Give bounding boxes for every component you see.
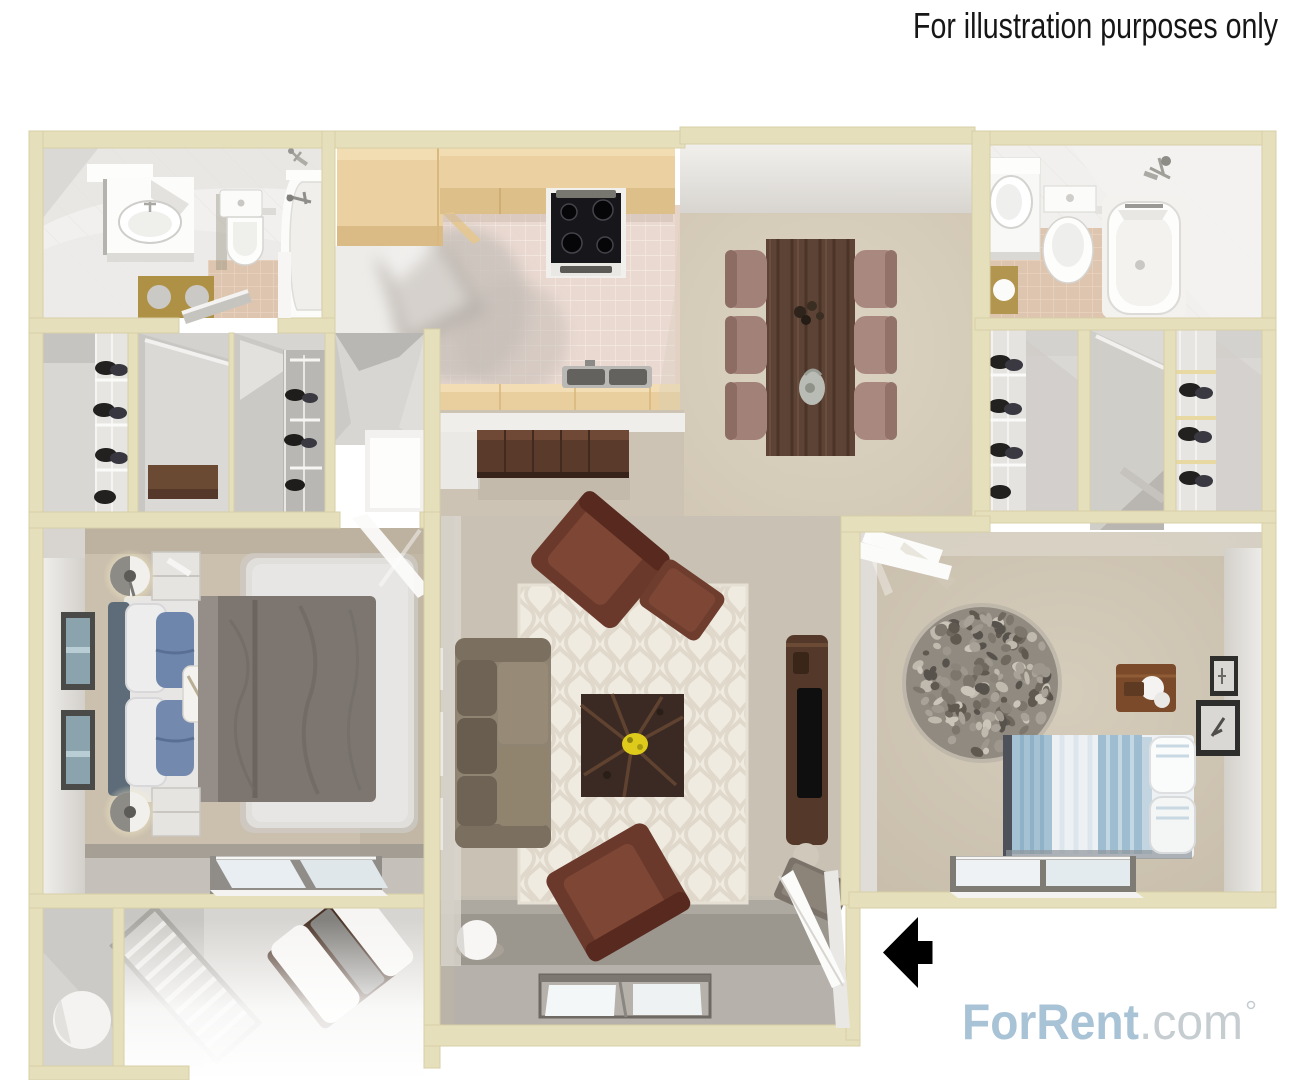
svg-text:For illustration purposes only: For illustration purposes only	[913, 5, 1278, 46]
svg-text:ForRent: ForRent	[962, 994, 1139, 1050]
svg-text:.com: .com	[1139, 994, 1243, 1050]
